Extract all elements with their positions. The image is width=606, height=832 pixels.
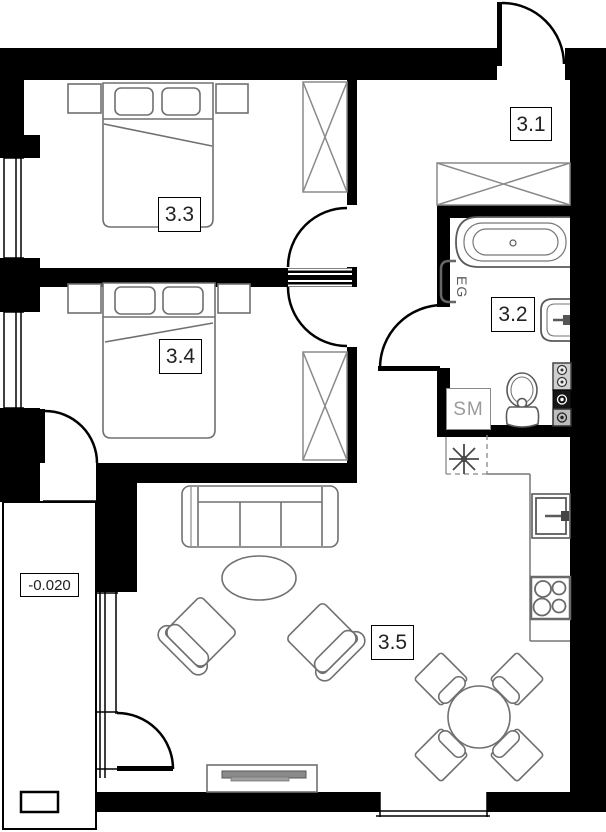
armchair-right [282, 598, 368, 684]
nightstand [68, 284, 101, 313]
nightstand [216, 84, 248, 113]
washbasin [541, 299, 570, 341]
door-bathroom [378, 305, 443, 371]
nightstand [68, 84, 101, 113]
window-living-room [376, 792, 490, 817]
sofa [182, 486, 338, 547]
toilet [506, 373, 538, 427]
utility-risers [553, 363, 571, 426]
door-bedroom-3-4 [288, 281, 352, 346]
nightstand [218, 284, 250, 313]
tv-stand [207, 765, 317, 792]
elevation-label: -0.020 [20, 573, 79, 597]
floor-plan: 3.1 3.2 3.3 3.4 3.5 -0.020 SM EG [0, 0, 606, 832]
room-label-3-5: 3.5 [371, 625, 414, 660]
wardrobe-3-4 [303, 352, 347, 460]
hallway-wardrobe [437, 163, 570, 205]
window-bedroom-3-4 [4, 311, 24, 409]
entrance-door [497, 2, 564, 66]
wardrobe-3-3 [303, 82, 347, 192]
door-bedroom-3-3 [288, 208, 352, 274]
towel-radiator-label: EG [452, 264, 472, 310]
balcony-box [21, 792, 58, 812]
armchair-left [154, 592, 240, 678]
door-bedroom-3-4-balcony [40, 409, 97, 501]
ceiling-point-symbol [449, 444, 479, 474]
balcony [3, 502, 96, 829]
window-bedroom-3-3 [4, 157, 24, 259]
balcony-glazing [96, 592, 118, 778]
room-label-3-2: 3.2 [491, 297, 535, 332]
door-living-room-balcony [117, 713, 173, 771]
room-label-3-3: 3.3 [158, 197, 201, 232]
room-label-3-1: 3.1 [510, 107, 552, 141]
washing-machine-label: SM [446, 388, 491, 430]
stove [531, 577, 570, 619]
dining-table [448, 686, 510, 748]
kitchen-sink [532, 494, 570, 538]
bathtub [456, 217, 570, 267]
room-label-3-4: 3.4 [159, 339, 202, 374]
coffee-table [222, 556, 296, 600]
